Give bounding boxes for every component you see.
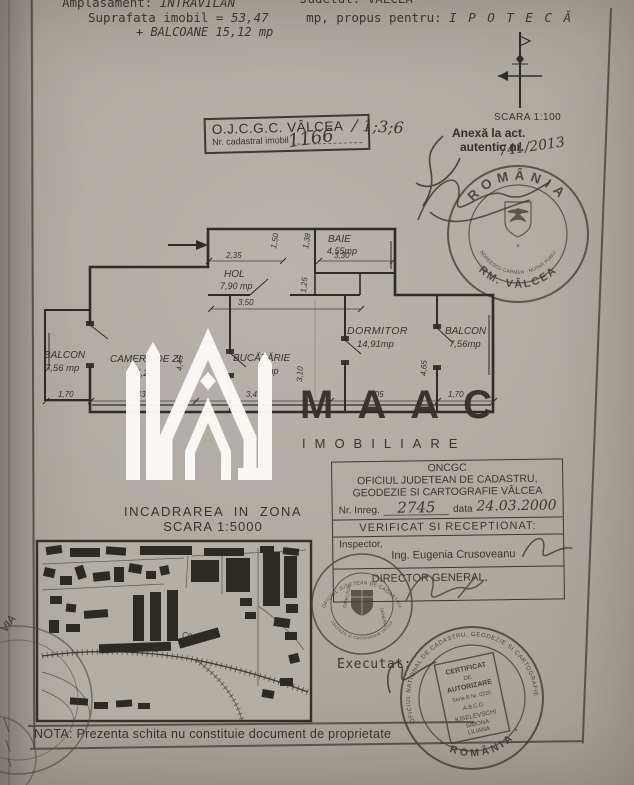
cadastral-nr-label: Nr. cadastral imobil: [212, 135, 289, 147]
dim-330: 3,30: [334, 251, 350, 260]
dim-150: 1,50: [269, 232, 281, 249]
director-signature: [398, 556, 488, 622]
amplasament-value: INTRAVILAN: [160, 0, 235, 10]
room-balcon-left-area: 7,56 mp: [45, 363, 79, 374]
scara-label: SCARA 1:100: [494, 112, 561, 123]
incadrare-line1: INCADRAREA IN ZONA: [98, 504, 328, 519]
map-label-5: 5: [154, 647, 158, 654]
balcoane-line: + BALCOANE 15,12 mp: [136, 25, 273, 39]
maac-sub-text: IMOBILIARE: [302, 436, 466, 451]
entry-arrow-icon: [196, 240, 208, 250]
dim-235: 2,35: [225, 251, 242, 260]
suprafata-line: Suprafata imobil = 53,47 mp, propus pent…: [88, 10, 573, 25]
map-label-plus11: +1,1: [230, 551, 242, 557]
propus-label: mp, propus pentru:: [306, 10, 441, 25]
propus-value: I P O T E C Ă: [449, 10, 573, 25]
anexa-line1: Anexă la act.: [452, 126, 525, 140]
left-margin-marks: VIA: [0, 588, 120, 783]
frame-right-border: [582, 8, 612, 744]
certificate-line-1: CERTIFICAT: [445, 661, 487, 677]
north-arrow-icon: [492, 26, 548, 110]
room-hol-area: 7,90 mp: [220, 281, 253, 291]
suprafata-value: 53,47: [231, 10, 269, 25]
certificate-line-2: DE: [463, 675, 472, 683]
dim-170a: 1,70: [58, 390, 74, 399]
room-hol: HOL: [224, 269, 245, 280]
dim-125: 1,25: [299, 276, 309, 293]
room-balcon-left: BALCON: [44, 350, 86, 361]
oncgc-nr-label: Nr. Inreg.: [339, 505, 380, 517]
judetean-stamp-right-text: GENERAL: [379, 607, 388, 629]
certificate-stamp: OFICIUL NATIONAL DE CADASTRU, GEODEZIE S…: [392, 618, 552, 778]
amplasament-label: Amplasament:: [62, 0, 152, 10]
amplasament-line: Amplasament: INTRAVILAN: [62, 0, 235, 10]
dim-350: 3,50: [238, 298, 254, 307]
nota-text: NOTA: Prezenta schita nu constituie docu…: [34, 727, 391, 741]
scanned-cadastral-document: Amplasament: INTRAVILAN Judetul: VÂLCEA …: [0, 0, 634, 785]
oncgc-nr-value: 2745: [384, 500, 449, 515]
maac-brand-text: MAAC: [300, 383, 516, 427]
incadrare-title: INCADRAREA IN ZONA SCARA 1:5000: [98, 504, 328, 534]
suprafata-label: Suprafata imobil =: [88, 10, 223, 25]
oncgc-data-value: 24.03.2000: [476, 497, 556, 514]
cadastral-nr-suffix: / 1;3;6: [352, 116, 405, 138]
dim-138: 1,38: [301, 232, 313, 249]
inspector-signature: [517, 526, 578, 569]
map-label-cp: Cp: [182, 631, 193, 640]
room-baie: BAIE: [328, 234, 351, 245]
oncgc-data-label: data: [453, 504, 473, 515]
judet-line: Judetul: VÂLCEA: [300, 0, 413, 6]
margin-note-via: VIA: [0, 613, 19, 634]
incadrare-scale: SCARA 1:5000: [98, 519, 328, 534]
